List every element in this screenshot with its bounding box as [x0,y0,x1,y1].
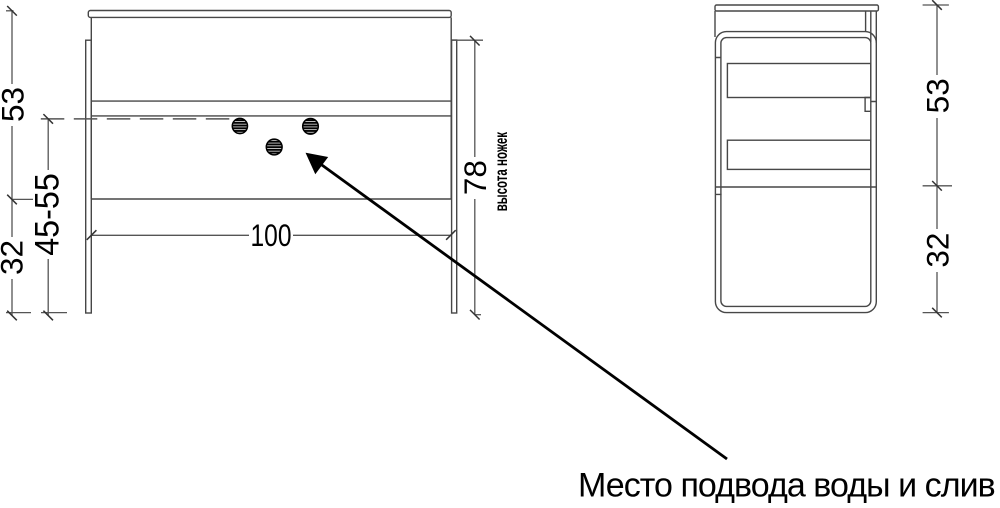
svg-text:32: 32 [0,240,30,275]
svg-text:Место подвода воды и слив: Место подвода воды и слив [578,467,995,504]
svg-text:53: 53 [920,78,956,113]
svg-text:45-55: 45-55 [29,173,67,256]
svg-text:32: 32 [920,233,956,268]
svg-text:высота ножек: высота ножек [491,132,511,212]
svg-text:78: 78 [457,160,493,195]
svg-text:100: 100 [251,217,292,253]
svg-text:53: 53 [0,87,31,122]
